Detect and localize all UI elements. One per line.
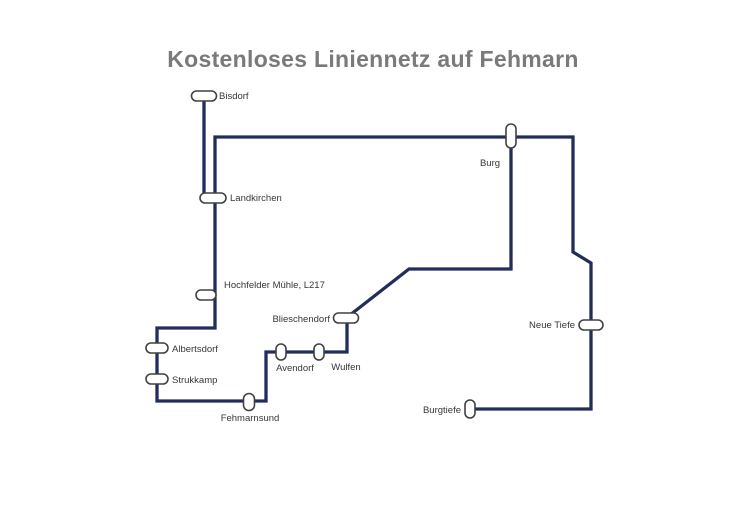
station-marker-burgtiefe xyxy=(465,400,475,418)
station-label-wulfen: Wulfen xyxy=(331,362,360,373)
route-segment-south-west-loop xyxy=(157,198,347,401)
station-albertsdorf: Albertsdorf xyxy=(146,343,218,355)
station-label-avendorf: Avendorf xyxy=(276,363,314,374)
station-label-strukkamp: Strukkamp xyxy=(172,375,217,386)
station-marker-fehmarnsund xyxy=(244,394,255,411)
station-strukkamp: Strukkamp xyxy=(146,374,217,386)
station-burgtiefe: Burgtiefe xyxy=(423,400,475,418)
station-marker-albertsdorf xyxy=(146,343,168,353)
station-fehmarnsund: Fehmarnsund xyxy=(221,394,280,425)
station-marker-strukkamp xyxy=(146,374,168,384)
station-label-landkirchen: Landkirchen xyxy=(230,193,282,204)
station-label-burgtiefe: Burgtiefe xyxy=(423,405,461,416)
station-label-neue-tiefe: Neue Tiefe xyxy=(529,320,575,331)
transit-network-diagram: BisdorfLandkirchenBurgHochfelder Mühle, … xyxy=(0,0,746,527)
station-blieschendorf: Blieschendorf xyxy=(272,313,358,325)
station-bisdorf: Bisdorf xyxy=(192,91,249,102)
station-landkirchen: Landkirchen xyxy=(200,193,282,204)
fehmarn-transit-map-page: Kostenloses Liniennetz auf Fehmarn Bisdo… xyxy=(0,0,746,527)
station-marker-avendorf xyxy=(276,344,286,360)
station-neue-tiefe: Neue Tiefe xyxy=(529,320,603,331)
station-marker-blieschendorf xyxy=(334,313,359,323)
route-segment-landkirchen-to-burg xyxy=(215,137,511,198)
station-marker-burg xyxy=(506,124,516,148)
station-label-bisdorf: Bisdorf xyxy=(219,91,249,102)
route-segment-burg-east-branch xyxy=(469,137,591,409)
station-label-hochfelder-m-hle-l217: Hochfelder Mühle, L217 xyxy=(224,280,325,291)
station-wulfen: Wulfen xyxy=(314,344,361,373)
station-marker-hochfelder-m-hle-l217 xyxy=(196,290,216,300)
station-label-albertsdorf: Albertsdorf xyxy=(172,344,218,355)
station-marker-wulfen xyxy=(314,344,324,360)
station-marker-neue-tiefe xyxy=(579,320,603,330)
station-label-fehmarnsund: Fehmarnsund xyxy=(221,413,280,424)
station-marker-bisdorf xyxy=(192,91,217,101)
station-marker-landkirchen xyxy=(200,193,226,203)
station-label-blieschendorf: Blieschendorf xyxy=(272,314,330,325)
station-label-burg: Burg xyxy=(480,158,500,169)
station-avendorf: Avendorf xyxy=(276,344,314,374)
